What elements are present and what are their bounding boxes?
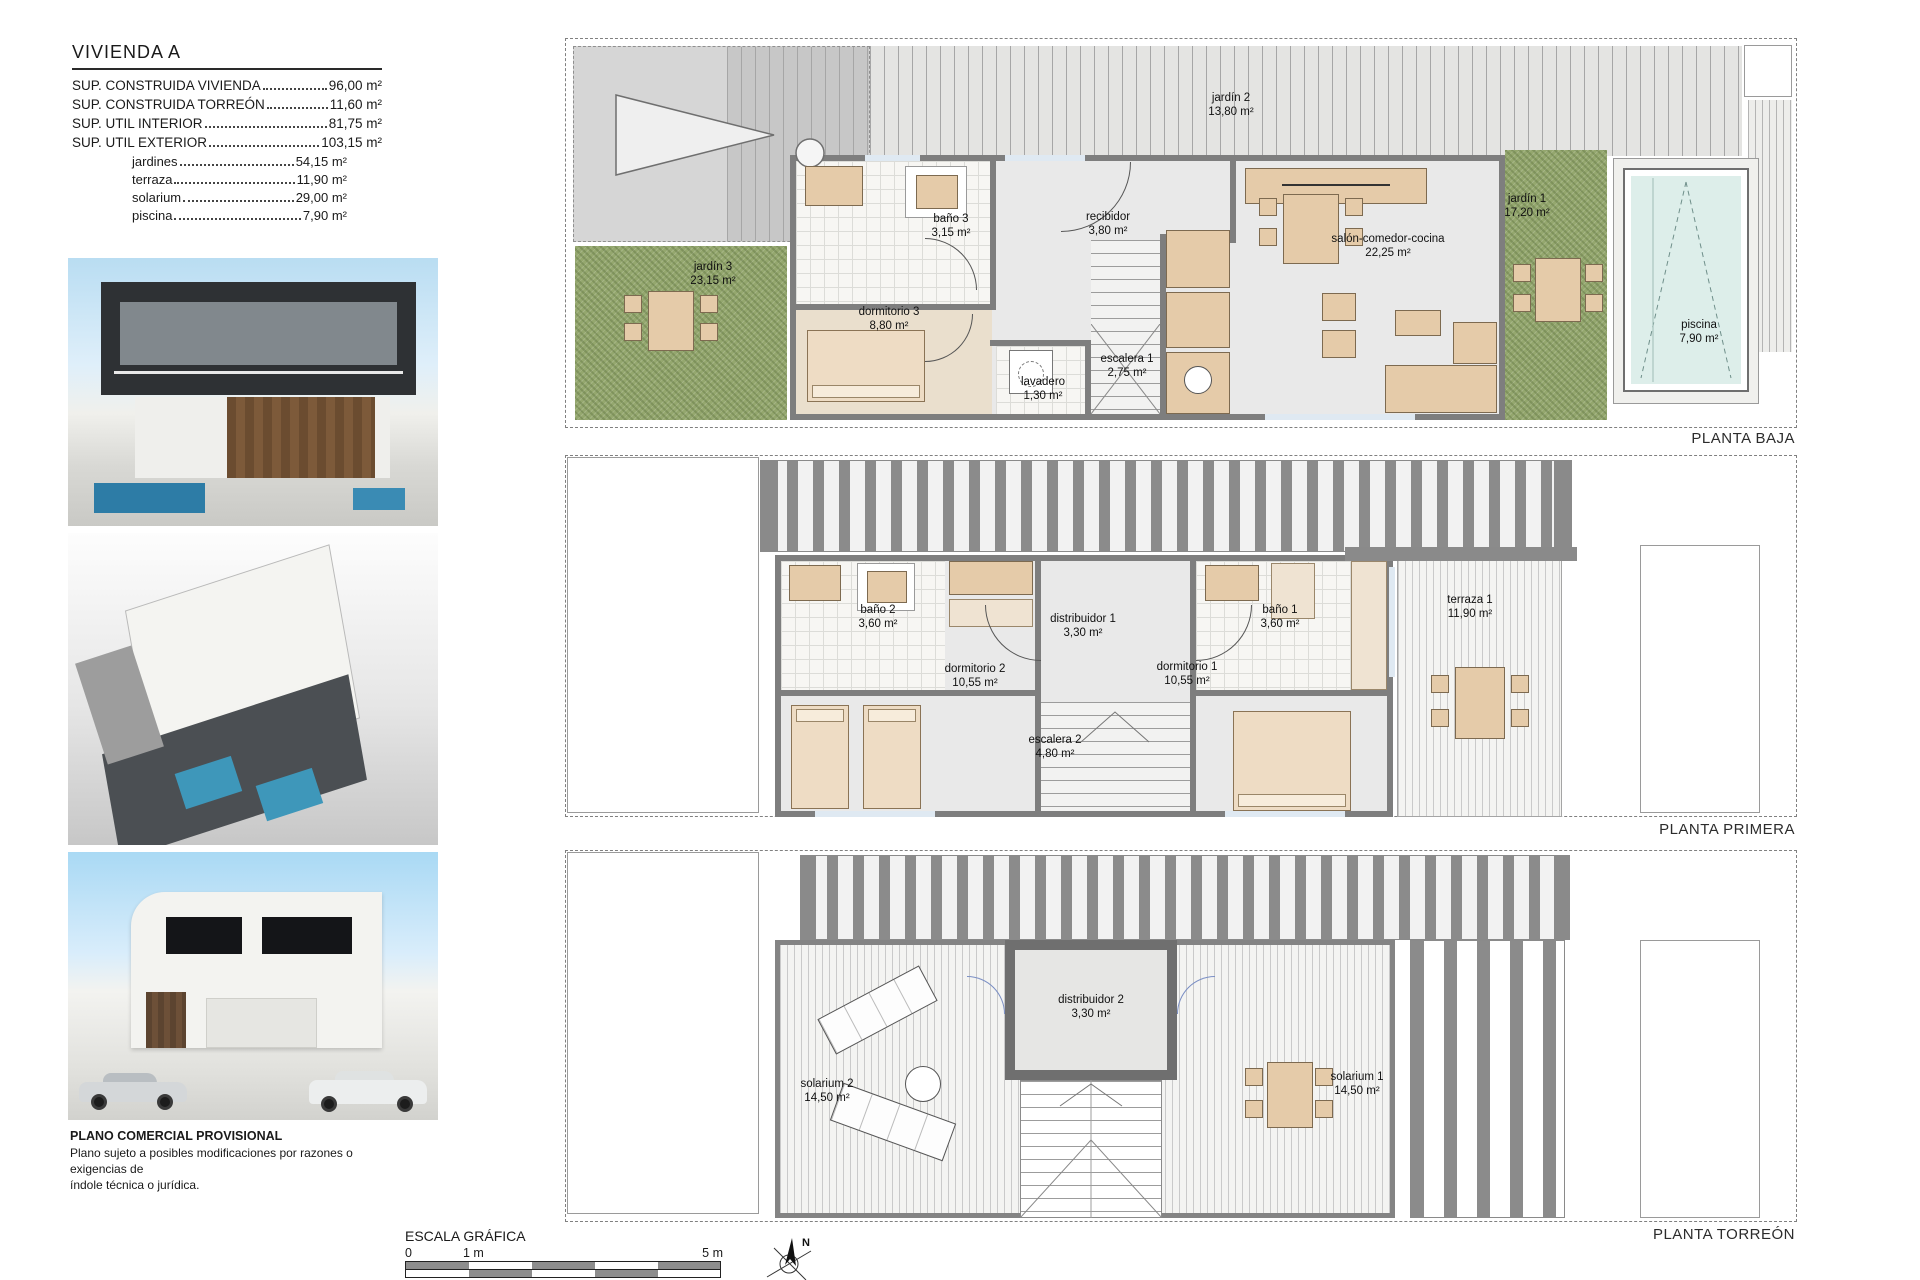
room-name: distribuidor 2 <box>1058 993 1124 1007</box>
wall <box>781 690 1041 696</box>
spec-value: 81,75 m² <box>329 116 382 131</box>
chair <box>1431 709 1449 727</box>
subspec-row: solarium29,00 m² <box>132 190 347 205</box>
chair <box>1513 294 1531 312</box>
wood-cladding <box>227 397 375 477</box>
kitchen-sink <box>1184 366 1212 394</box>
stair-diagonals <box>1020 1080 1162 1218</box>
room-area: 1,30 m² <box>1021 389 1065 403</box>
window <box>1005 155 1085 161</box>
room-area: 11,90 m² <box>1447 607 1492 621</box>
room-label: jardín 213,80 m² <box>1208 91 1253 120</box>
wall <box>1230 155 1236 243</box>
room-area: 14,50 m² <box>800 1091 853 1105</box>
room-area: 3,60 m² <box>1261 617 1300 631</box>
pergola-cap <box>1554 460 1572 552</box>
spec-row: SUP. CONSTRUIDA VIVIENDA96,00 m² <box>72 78 382 93</box>
pergola-slats <box>800 855 1570 940</box>
room-name: solarium 2 <box>800 1077 853 1091</box>
pool-lane-lines <box>1623 168 1749 392</box>
room-name: salón-comedor-cocina <box>1331 232 1444 246</box>
chair <box>700 323 718 341</box>
car-wheel <box>91 1094 107 1110</box>
fridge-unit <box>1166 230 1230 288</box>
chair <box>700 295 718 313</box>
armchair <box>1322 293 1356 321</box>
room-label: salón-comedor-cocina22,25 m² <box>1331 232 1444 261</box>
chair <box>1585 264 1603 282</box>
room-area: 2,75 m² <box>1100 366 1153 380</box>
room-name: jardín 3 <box>690 260 735 274</box>
chair <box>1259 198 1277 216</box>
room-name: baño 2 <box>859 603 898 617</box>
pillows <box>1238 794 1346 807</box>
spec-value: 103,15 m² <box>321 135 382 150</box>
scale-bar-row <box>406 1262 720 1270</box>
shower <box>905 166 967 218</box>
pillows <box>868 709 916 722</box>
disclaimer: PLANO COMERCIAL PROVISIONAL Plano sujeto… <box>70 1128 400 1193</box>
carport-markings <box>574 47 871 243</box>
adjacent-unit-outline <box>567 852 759 1214</box>
chair <box>1511 709 1529 727</box>
solarium-table-set <box>1245 1052 1335 1144</box>
garden-table <box>1535 258 1581 322</box>
room-label: distribuidor 23,30 m² <box>1058 993 1124 1022</box>
louvre-screen <box>1410 940 1565 1218</box>
floor-plan-planta-torreon: solarium 214,50 m² distribuidor 23,30 m²… <box>565 850 1797 1222</box>
spec-label: piscina <box>132 208 172 223</box>
room-name: distribuidor 1 <box>1050 612 1116 626</box>
wood-panel <box>146 992 186 1048</box>
tick-0: 0 <box>405 1246 412 1260</box>
room-label: recibidor3,80 m² <box>1086 210 1130 239</box>
bed-single <box>791 705 849 809</box>
dot-leader <box>267 107 328 109</box>
side-table <box>905 1066 941 1102</box>
entry-landing <box>1744 45 1792 97</box>
spec-row: SUP. CONSTRUIDA TORREÓN11,60 m² <box>72 97 382 112</box>
shower-tray <box>916 175 958 209</box>
bed-double <box>1233 711 1351 811</box>
room-label: jardín 323,15 m² <box>690 260 735 289</box>
subspec-row: terraza11,90 m² <box>132 172 347 187</box>
spec-value: 54,15 m² <box>296 154 347 169</box>
disclaimer-line: Plano sujeto a posibles modificaciones p… <box>70 1146 353 1176</box>
sofa <box>1385 365 1497 413</box>
pool-right <box>353 488 405 509</box>
ground-floor-volume <box>135 397 390 477</box>
room-label: escalera 12,75 m² <box>1100 352 1153 381</box>
room-area: 22,25 m² <box>1331 246 1444 260</box>
room-area: 3,15 m² <box>932 226 971 240</box>
chair <box>1245 1068 1263 1086</box>
counter-unit <box>1166 292 1230 348</box>
pillows <box>796 709 844 722</box>
room-label: baño 13,60 m² <box>1261 603 1300 632</box>
chair <box>1345 198 1363 216</box>
floor-plan-planta-primera: baño 23,60 m² distribuidor 13,30 m² baño… <box>565 455 1797 817</box>
garden-table <box>648 291 694 351</box>
plan-title-planta-torreon: PLANTA TORREÓN <box>1653 1226 1795 1243</box>
render-aerial-view <box>68 533 438 845</box>
room-name: terraza 1 <box>1447 593 1492 607</box>
shower-tray <box>867 571 907 603</box>
dining-set <box>1255 178 1375 278</box>
chair <box>1245 1100 1263 1118</box>
spec-label: SUP. UTIL INTERIOR <box>72 116 203 131</box>
tick-5m: 5 m <box>702 1246 723 1260</box>
wall <box>1190 690 1393 696</box>
adjacent-terrace-outline <box>1640 940 1760 1218</box>
room-name: escalera 2 <box>1028 733 1081 747</box>
spec-panel: VIVIENDA A SUP. CONSTRUIDA VIVIENDA96,00… <box>72 42 382 226</box>
spec-value: 11,90 m² <box>297 172 347 187</box>
bed-double <box>807 330 925 402</box>
room-area: 3,60 m² <box>859 617 898 631</box>
scale-ticks: 0 1 m 5 m <box>405 1246 723 1261</box>
room-name: jardín 1 <box>1504 192 1549 206</box>
garage-door <box>206 998 317 1048</box>
window-right <box>262 917 353 954</box>
dot-leader <box>205 126 327 128</box>
window-left <box>166 917 241 954</box>
closet-strip <box>1351 561 1387 690</box>
wall <box>990 340 1091 346</box>
page-title: VIVIENDA A <box>72 42 382 70</box>
room-name: dormitorio 3 <box>859 305 920 319</box>
car-suv <box>309 1072 427 1112</box>
disclaimer-line: índole técnica o jurídica. <box>70 1178 199 1192</box>
room-area: 10,55 m² <box>1157 674 1218 688</box>
room-name: baño 3 <box>932 212 971 226</box>
scale-bar <box>405 1261 721 1278</box>
adjacent-unit-outline <box>567 457 759 813</box>
room-label: piscina7,90 m² <box>1680 318 1719 347</box>
subspec-row: piscina7,90 m² <box>132 208 347 223</box>
room-area: 10,55 m² <box>945 676 1006 690</box>
plan-title-planta-primera: PLANTA PRIMERA <box>1659 821 1795 838</box>
wall <box>1190 696 1196 817</box>
render-front-view <box>68 258 438 526</box>
parapet <box>1345 547 1577 561</box>
car-sedan <box>79 1070 187 1110</box>
dot-leader <box>183 200 294 202</box>
room-label: solarium 114,50 m² <box>1330 1070 1383 1099</box>
bathtub <box>789 565 841 601</box>
chair <box>624 323 642 341</box>
room-name: lavadero <box>1021 375 1065 389</box>
spec-label: solarium <box>132 190 181 205</box>
room-area: 7,90 m² <box>1680 332 1719 346</box>
room-area: 8,80 m² <box>859 319 920 333</box>
kitchen-counter <box>1166 230 1230 414</box>
garden-table-set <box>620 283 722 359</box>
spec-value: 11,60 m² <box>330 97 382 112</box>
spec-label: SUP. CONSTRUIDA VIVIENDA <box>72 78 261 93</box>
spec-value: 29,00 m² <box>296 190 347 205</box>
balcony <box>120 302 397 365</box>
room-label: baño 23,60 m² <box>859 603 898 632</box>
spec-value: 96,00 m² <box>329 78 382 93</box>
graphic-scale: ESCALA GRÁFICA 0 1 m 5 m <box>405 1228 723 1278</box>
adjacent-terrace-outline <box>1640 545 1760 813</box>
disclaimer-title: PLANO COMERCIAL PROVISIONAL <box>70 1129 282 1143</box>
solarium-table <box>1267 1062 1313 1128</box>
car-wheel <box>157 1094 173 1110</box>
carport-area <box>573 46 870 242</box>
room-area: 23,15 m² <box>690 274 735 288</box>
room-name: dormitorio 1 <box>1157 660 1218 674</box>
chair <box>624 295 642 313</box>
room-label: solarium 214,50 m² <box>800 1077 853 1106</box>
terrace-table-set <box>1427 655 1531 751</box>
dot-leader <box>180 164 294 166</box>
north-arrow-icon: N <box>762 1234 818 1280</box>
scale-bar-row <box>406 1270 720 1277</box>
pool-left <box>94 483 205 512</box>
dot-leader <box>174 218 300 220</box>
chair <box>1585 294 1603 312</box>
pergola-cap <box>800 855 816 940</box>
pergola-cap <box>760 460 778 552</box>
chair <box>1259 228 1277 246</box>
chair <box>1431 675 1449 693</box>
window <box>1265 414 1415 420</box>
car-wheel <box>397 1096 413 1112</box>
chaise <box>1453 322 1497 364</box>
spec-label: terraza <box>132 172 172 187</box>
room-label: lavadero1,30 m² <box>1021 375 1065 404</box>
spec-value: 7,90 m² <box>303 208 347 223</box>
render-facade-view <box>68 852 438 1120</box>
spec-label: SUP. UTIL EXTERIOR <box>72 135 207 150</box>
room-label: jardín 117,20 m² <box>1504 192 1549 221</box>
pillows <box>812 385 920 398</box>
railing <box>114 371 403 374</box>
window <box>1389 567 1395 677</box>
garden-table-set <box>1513 250 1603 334</box>
spec-label: jardines <box>132 154 178 169</box>
jardin-2-area <box>870 46 1742 156</box>
room-label: terraza 111,90 m² <box>1447 593 1492 622</box>
pergola-slats <box>760 460 1572 552</box>
north-label: N <box>802 1237 810 1249</box>
room-name: recibidor <box>1086 210 1130 224</box>
spec-label: SUP. CONSTRUIDA TORREÓN <box>72 97 265 112</box>
window <box>1225 811 1345 817</box>
dot-leader <box>209 145 319 147</box>
upper-floor-volume <box>101 282 416 395</box>
room-area: 3,80 m² <box>1086 224 1130 238</box>
room-area: 13,80 m² <box>1208 105 1253 119</box>
room-label: escalera 24,80 m² <box>1028 733 1081 762</box>
wall <box>990 155 996 310</box>
sink-unit <box>805 166 863 206</box>
facade-volume <box>131 892 383 1047</box>
terrace-table <box>1455 667 1505 739</box>
armchair <box>1322 330 1356 358</box>
bed-single <box>863 705 921 809</box>
room-name: baño 1 <box>1261 603 1300 617</box>
room-name: escalera 1 <box>1100 352 1153 366</box>
pergola-cap <box>1554 855 1570 940</box>
room-name: dormitorio 2 <box>945 662 1006 676</box>
sink-unit <box>1205 565 1259 601</box>
chair <box>1315 1100 1333 1118</box>
room-label: dormitorio 110,55 m² <box>1157 660 1218 689</box>
room-label: baño 33,15 m² <box>932 212 971 241</box>
plan-sheet: VIVIENDA A SUP. CONSTRUIDA VIVIENDA96,00… <box>0 0 1920 1280</box>
scale-title: ESCALA GRÁFICA <box>405 1228 723 1244</box>
window <box>865 155 920 161</box>
spec-row: SUP. UTIL INTERIOR81,75 m² <box>72 116 382 131</box>
plan-title-planta-baja: PLANTA BAJA <box>1691 430 1795 447</box>
subspec-row: jardines54,15 m² <box>132 154 347 169</box>
room-name: solarium 1 <box>1330 1070 1383 1084</box>
room-label: dormitorio 210,55 m² <box>945 662 1006 691</box>
dot-leader <box>174 182 294 184</box>
wardrobe <box>949 561 1033 595</box>
room-label: distribuidor 13,30 m² <box>1050 612 1116 641</box>
car-wheel <box>321 1096 337 1112</box>
spec-row: SUP. UTIL EXTERIOR103,15 m² <box>72 135 382 150</box>
floor-plan-planta-baja: jardín 213,80 m² jardín 323,15 m² baño 3… <box>565 38 1797 428</box>
tick-1m: 1 m <box>463 1246 484 1260</box>
chair <box>1511 675 1529 693</box>
room-label: dormitorio 38,80 m² <box>859 305 920 334</box>
room-area: 14,50 m² <box>1330 1084 1383 1098</box>
coffee-table <box>1395 310 1441 336</box>
room-area: 3,30 m² <box>1050 626 1116 640</box>
room-area: 3,30 m² <box>1058 1007 1124 1021</box>
room-name: jardín 2 <box>1208 91 1253 105</box>
window <box>815 811 935 817</box>
dot-leader <box>263 88 327 90</box>
room-name: piscina <box>1680 318 1719 332</box>
chair <box>1513 264 1531 282</box>
room-area: 4,80 m² <box>1028 747 1081 761</box>
room-area: 17,20 m² <box>1504 206 1549 220</box>
